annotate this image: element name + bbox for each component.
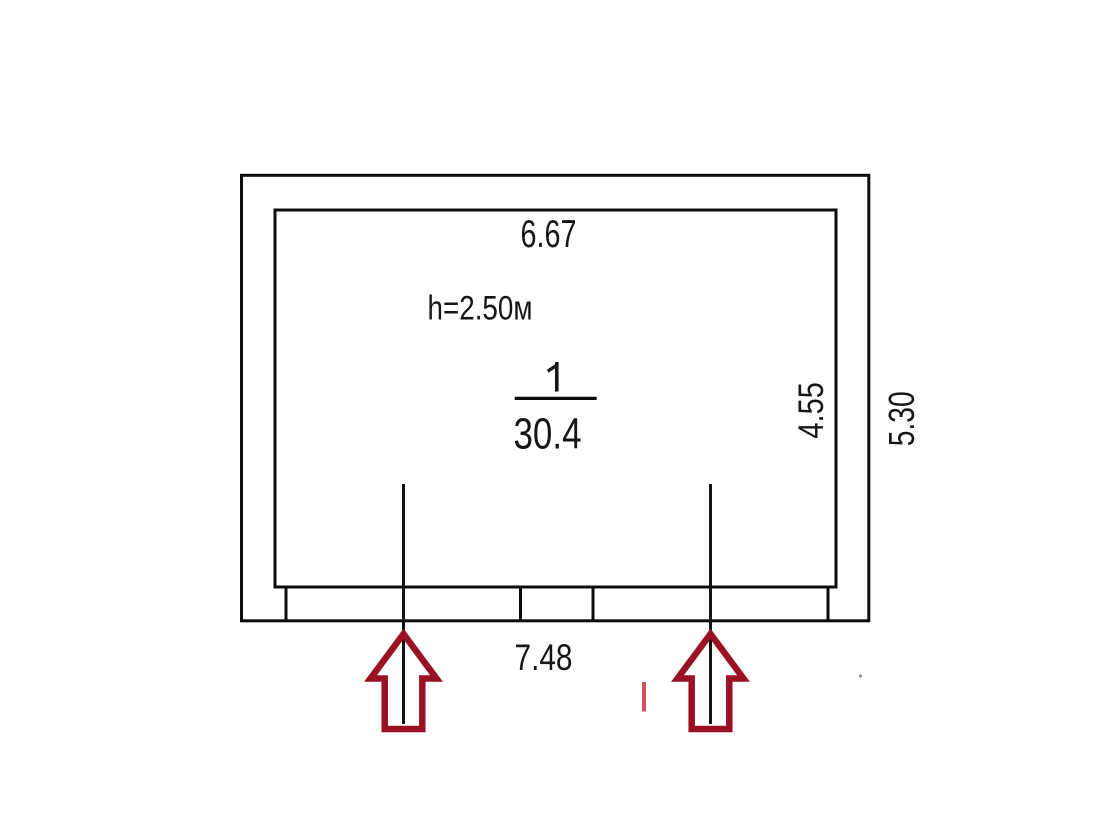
svg-text:h=2.50м: h=2.50м: [428, 290, 533, 328]
svg-text:6.67: 6.67: [521, 213, 577, 256]
svg-text:30.4: 30.4: [514, 411, 582, 459]
svg-text:7.48: 7.48: [515, 636, 573, 678]
svg-text:4.55: 4.55: [791, 382, 831, 439]
svg-text:5.30: 5.30: [881, 391, 922, 446]
